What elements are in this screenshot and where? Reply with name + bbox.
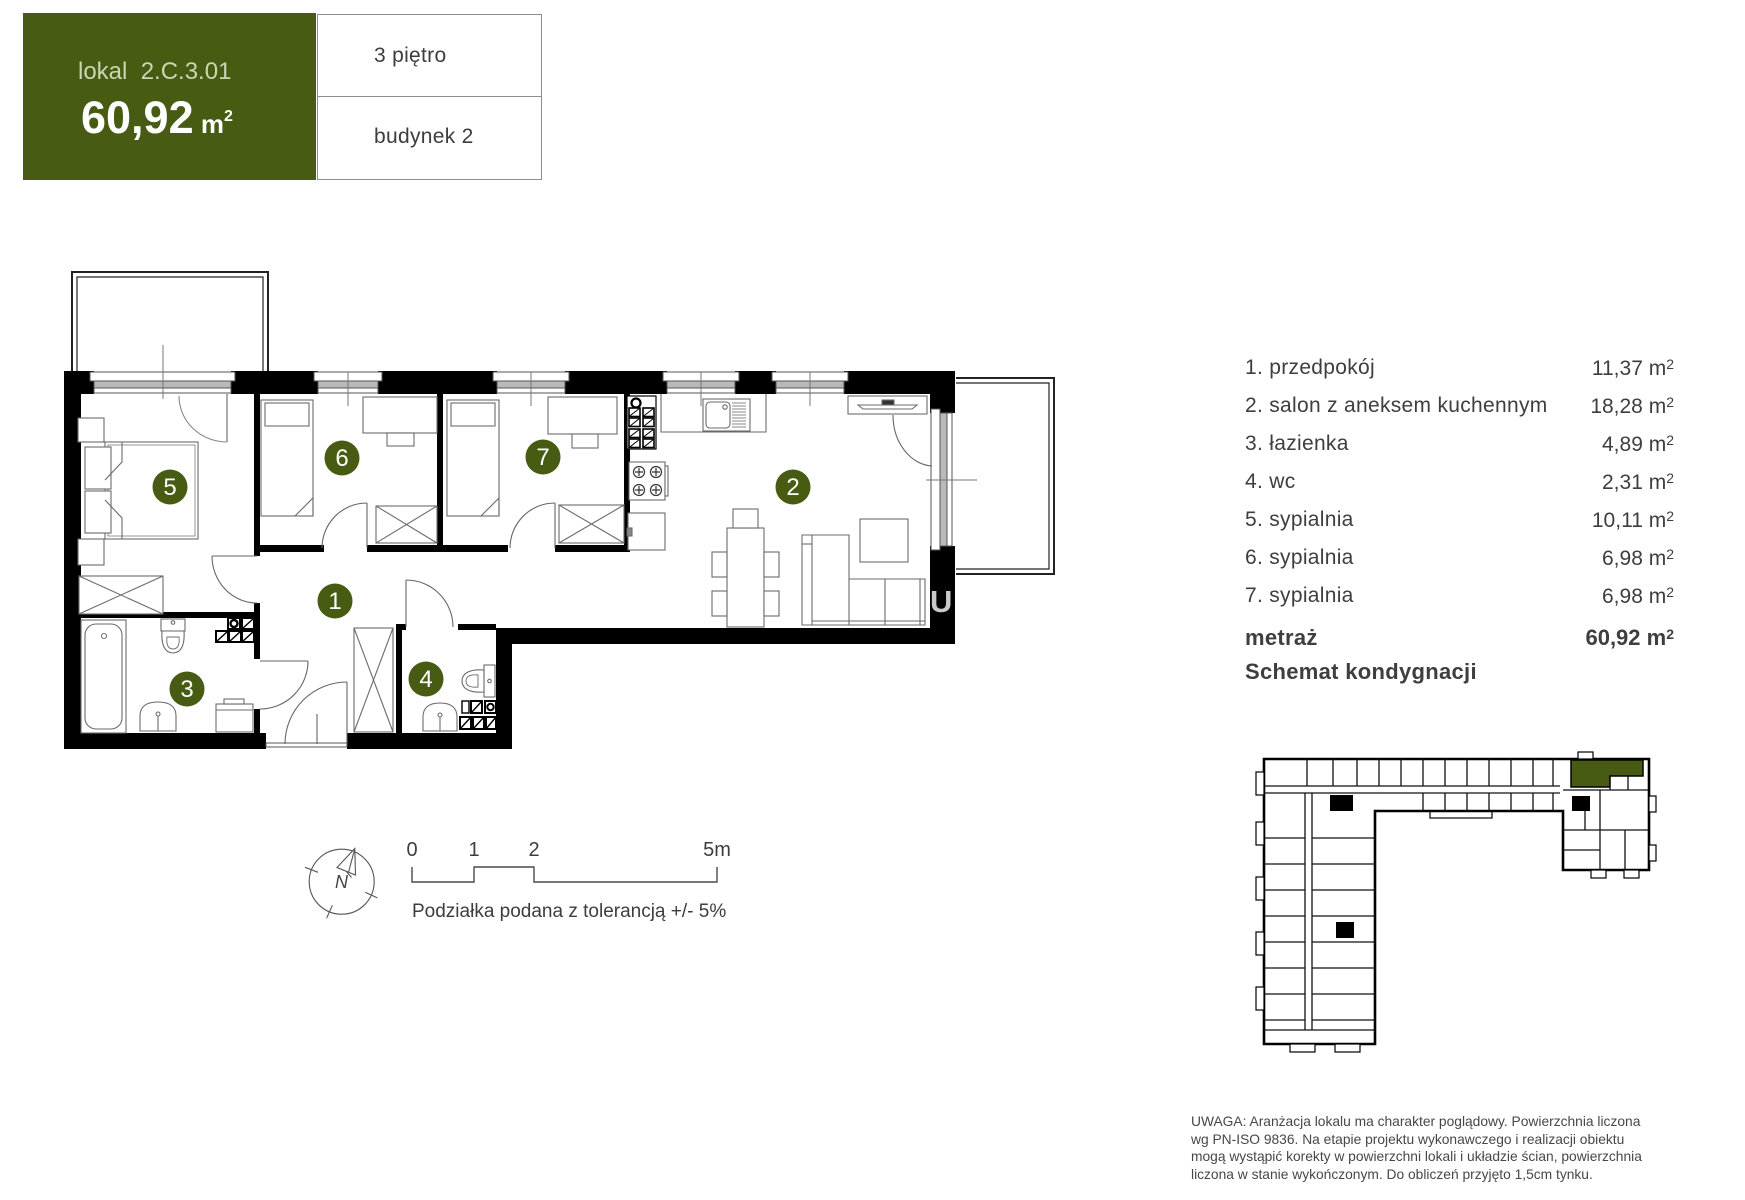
svg-text:5m: 5m	[703, 839, 731, 861]
svg-text:5: 5	[163, 474, 176, 501]
svg-text:1: 1	[328, 588, 341, 615]
svg-text:Podziałka podana z tolerancją: Podziałka podana z tolerancją +/- 5%	[412, 901, 726, 922]
svg-text:N: N	[335, 872, 349, 892]
svg-text:0: 0	[406, 839, 417, 861]
svg-text:1: 1	[468, 839, 479, 861]
svg-text:3: 3	[180, 676, 193, 703]
svg-text:2: 2	[786, 474, 799, 501]
svg-text:2: 2	[528, 839, 539, 861]
svg-text:U: U	[930, 584, 952, 619]
svg-text:7: 7	[536, 444, 549, 471]
svg-text:4: 4	[419, 666, 432, 693]
svg-text:6: 6	[335, 445, 348, 472]
